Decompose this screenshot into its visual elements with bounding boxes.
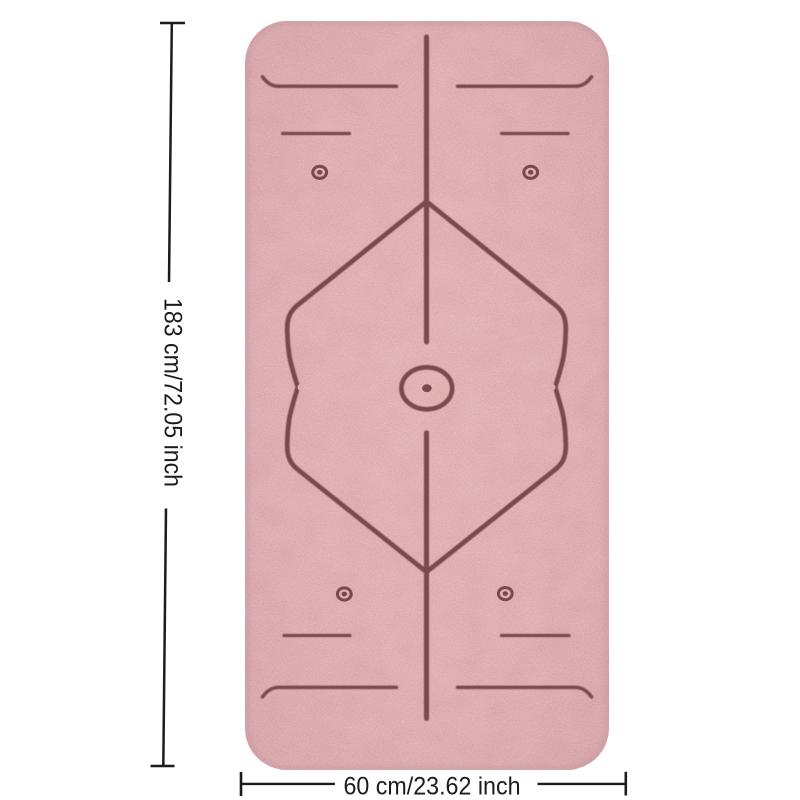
svg-text:60 cm/23.62 inch: 60 cm/23.62 inch	[344, 772, 521, 800]
svg-text:183 cm/72.05 inch: 183 cm/72.05 inch	[159, 298, 187, 487]
